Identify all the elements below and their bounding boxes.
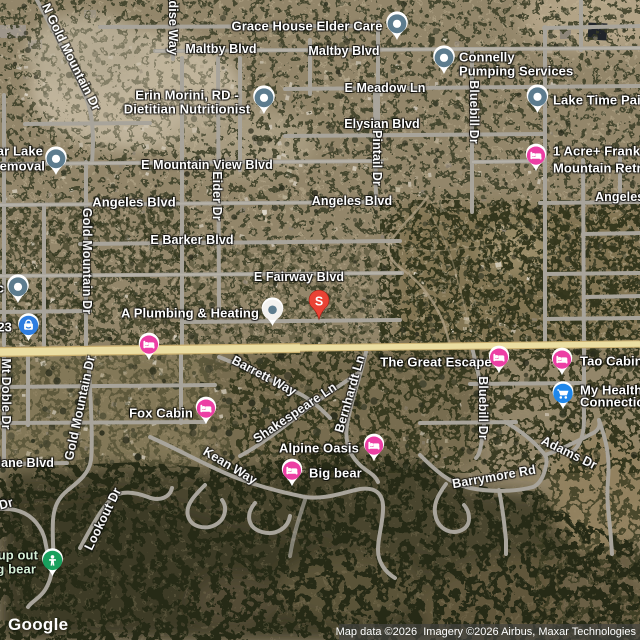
svg-text:S: S — [315, 294, 323, 308]
